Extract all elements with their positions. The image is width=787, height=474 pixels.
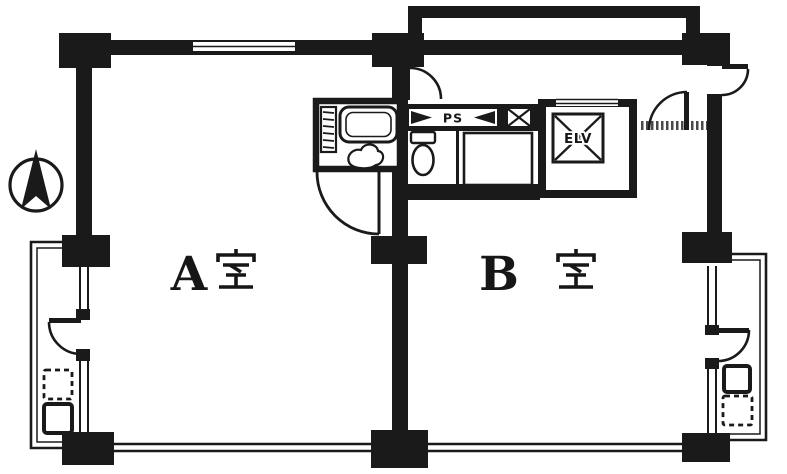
door-leaf xyxy=(49,318,81,323)
door-leaf xyxy=(718,328,749,333)
column xyxy=(371,236,427,264)
column xyxy=(59,33,111,68)
column xyxy=(682,433,730,462)
door-jamb xyxy=(76,349,90,361)
elevator-door-opening xyxy=(556,97,618,106)
column xyxy=(682,232,732,263)
column xyxy=(62,235,110,267)
door-leaf xyxy=(684,92,689,130)
toilet-tank xyxy=(411,132,435,143)
east-door-opening xyxy=(706,66,723,94)
toilet-bowl xyxy=(413,145,434,175)
facilities-bottom-wall xyxy=(402,184,540,200)
column xyxy=(371,430,428,468)
corridor-wall-top xyxy=(408,6,700,18)
room-b-letter: B xyxy=(479,247,519,302)
partition-wall xyxy=(456,129,459,186)
column xyxy=(682,33,730,65)
room-a-letter: A xyxy=(170,247,208,302)
kitchen-counter xyxy=(464,133,532,185)
pipe-space: PS xyxy=(409,109,497,126)
floor-plan-drawing: PS ELV A xyxy=(0,0,787,474)
elevator: ELV xyxy=(538,97,637,198)
west-wall xyxy=(76,50,92,242)
pipe-space-label: PS xyxy=(443,111,463,126)
floor-plan-page: PS ELV A xyxy=(0,0,787,474)
door-jamb xyxy=(705,325,719,335)
elevator-label: ELV xyxy=(564,131,592,147)
column xyxy=(372,33,424,67)
door-leaf xyxy=(722,64,748,69)
column xyxy=(62,432,114,465)
door-leaf xyxy=(405,66,410,100)
meter-box xyxy=(508,109,530,126)
